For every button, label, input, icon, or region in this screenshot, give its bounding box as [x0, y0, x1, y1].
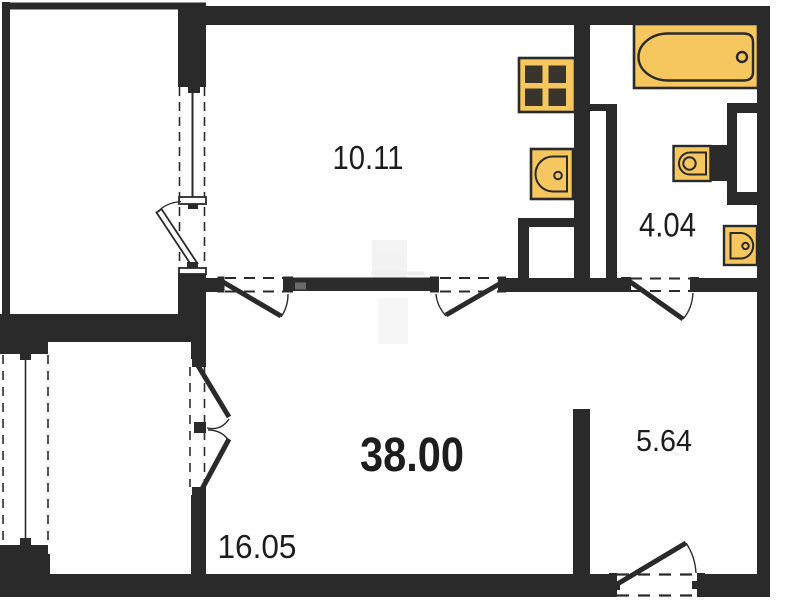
svg-text:10.11: 10.11 [333, 139, 404, 176]
svg-text:5.64: 5.64 [636, 423, 692, 458]
svg-text:38.00: 38.00 [360, 429, 464, 482]
svg-text:16.05: 16.05 [218, 528, 297, 565]
svg-text:4.04: 4.04 [639, 207, 696, 245]
